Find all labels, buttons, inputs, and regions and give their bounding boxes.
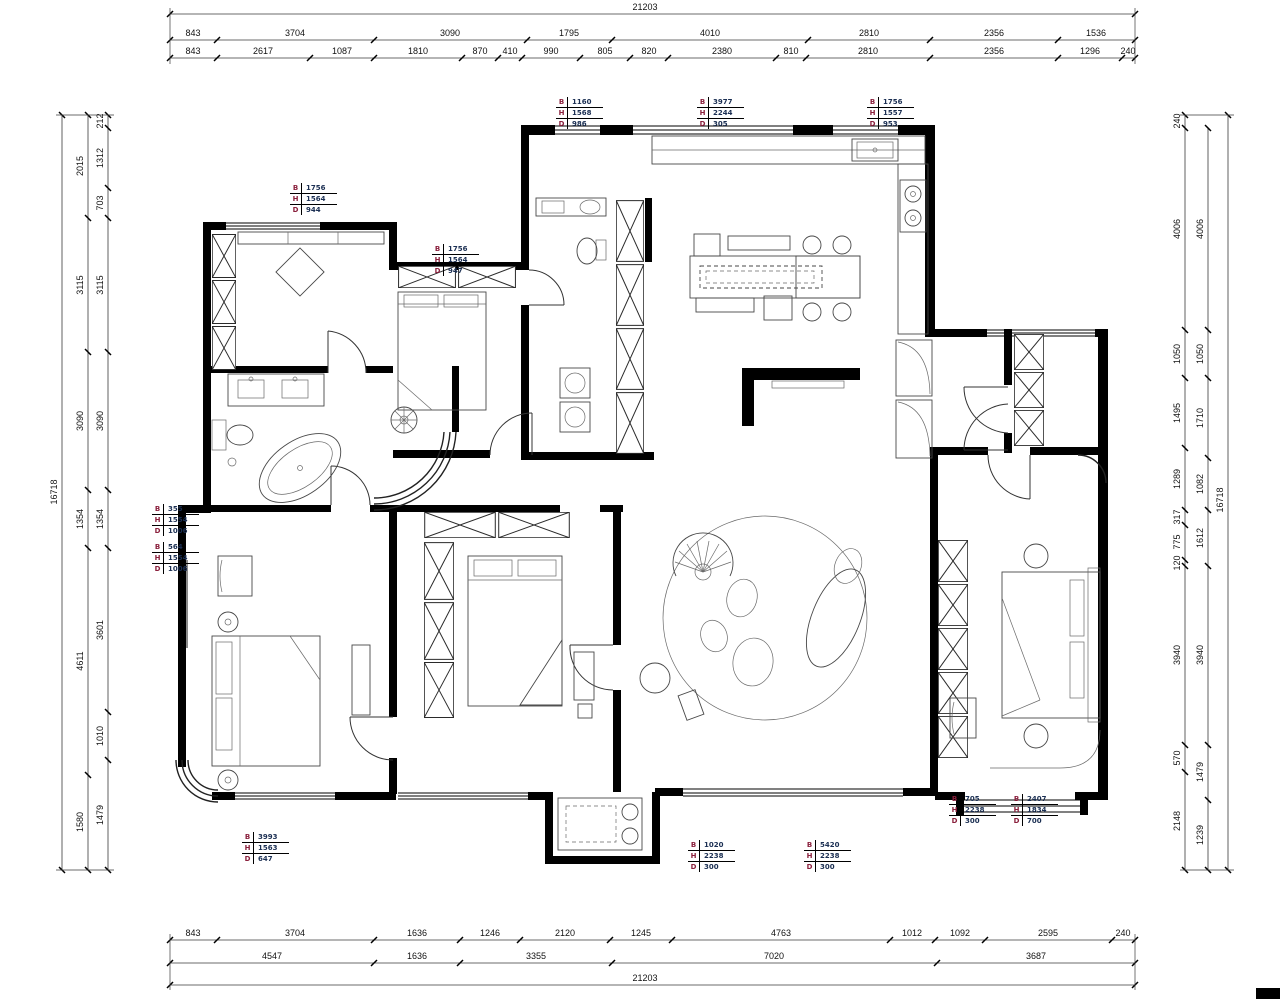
wall [925,329,987,337]
fixture-annotation: B3993 H1563 D647 [242,832,289,864]
fixture-annotation: B1160 H1568 D986 [556,97,603,129]
wall [389,512,397,717]
annotation-value: 1020 [700,840,735,850]
dim-label: 3601 [95,620,105,640]
wardrobe [938,584,967,625]
wall [389,758,397,794]
annotation-letter: D [1011,816,1023,826]
wall [652,792,660,862]
tv-side-cabinet [742,368,754,426]
toilet-bowl [577,238,597,264]
wall [393,450,490,458]
fridge-cabinet [896,340,932,396]
fixture-annotation: B1756 H1564 D944 [290,183,337,215]
annotation-value: 2244 [709,108,744,118]
annotation-letter: H [152,515,164,525]
fixture-annotation: B5420 H2238 D300 [804,840,851,872]
dim-label: 570 [1172,750,1182,765]
pillow [216,642,232,694]
dim-label: 775 [1172,534,1182,549]
stool [622,804,638,820]
dining-chair [833,236,851,254]
pillow [444,295,478,307]
annotation-value: 1568 [568,108,603,118]
annotation-value: 300 [961,816,996,826]
annotation-value: 1006 [164,526,199,536]
dim-label: 1082 [1195,474,1205,494]
wardrobe [212,280,236,323]
stool [578,704,592,718]
stool [218,770,238,790]
annotation-letter: H [556,108,568,118]
dim-label: 2810 [859,28,879,38]
side-table [678,690,704,721]
fixture-annotation: B1756 H1564 D947 [432,244,479,276]
annotation-letter: H [688,851,700,861]
door-swing [331,466,370,505]
dim-label: 1580 [75,812,85,832]
pantry-cabinet [896,400,932,458]
bed [1002,572,1100,718]
annotation-letter: D [697,119,709,129]
washer [560,368,590,398]
bedroom-master [938,540,1100,768]
annotation-letter: H [949,805,961,815]
dim-label: 820 [641,46,656,56]
wall [1098,455,1108,800]
annotation-letter: H [867,108,879,118]
dim-label: 21203 [632,2,657,12]
door-swing [328,331,366,373]
annotation-letter: B [242,832,254,842]
stool [622,828,638,844]
sink [238,380,264,398]
dim-label: 2015 [75,156,85,176]
chair [218,556,252,596]
pillow [1070,580,1084,636]
annotation-value: 1160 [568,97,603,107]
dim-label: 1246 [480,928,500,938]
dim-label: 7020 [764,951,784,961]
annotation-letter: D [290,205,302,215]
stool [764,296,792,320]
wardrobe [938,628,967,669]
dim-label: 1354 [95,509,105,529]
wall [521,125,529,270]
wall [529,125,555,135]
dim-label: 4763 [771,928,791,938]
dim-label: 1354 [75,509,85,529]
annotation-value: 1557 [879,108,914,118]
annotation-letter: H [804,851,816,861]
annotation-value: 947 [444,266,479,276]
annotation-letter: D [152,526,164,536]
dim-label: 3940 [1172,645,1182,665]
fixture-annotation: B1756 H1557 D953 [867,97,914,129]
annotation-letter: B [152,542,164,552]
bed [398,292,486,410]
pillow [474,560,512,576]
annotation-letter: D [688,862,700,872]
pillow [216,698,232,750]
entry-double-door [964,387,1008,450]
pouf [640,663,670,693]
dim-label: 2595 [1038,928,1058,938]
dim-label: 240 [1115,928,1130,938]
annotation-value: 3993 [254,832,289,842]
dim-label: 3704 [285,28,305,38]
annotation-value: 1564 [444,255,479,265]
dim-label: 4006 [1195,219,1205,239]
wall [1004,329,1012,385]
ceiling-fan-icon [391,407,417,433]
wall [793,125,833,135]
annotation-value: 355 [164,504,199,514]
nightstand [1024,724,1048,748]
wall [930,455,938,792]
dim-label: 1495 [1172,403,1182,423]
tall-cabinet [616,393,643,454]
dimension-labels: 21203 843 3704 3090 1795 4010 2810 2356 … [49,2,1225,983]
dim-label: 3687 [1026,951,1046,961]
floor-drain [228,458,236,466]
annotation-value: 944 [302,205,337,215]
annotation-value: 3977 [709,97,744,107]
dim-label: 240 [1120,46,1135,56]
dim-label: 1050 [1172,344,1182,364]
island-counter [690,256,860,298]
toilet-tank [596,240,606,260]
annotation-value: 700 [1023,816,1058,826]
dim-label: 410 [502,46,517,56]
dim-label: 16718 [49,479,59,504]
annotation-value: 1563 [254,843,289,853]
dim-label: 16718 [1215,487,1225,512]
annotation-letter: B [556,97,568,107]
living-room [640,381,878,720]
pillow [518,560,556,576]
dim-label: 805 [597,46,612,56]
wall [366,366,393,373]
dim-label: 1710 [1195,408,1205,428]
wall [1075,792,1108,800]
annotation-letter: B [804,840,816,850]
dim-label: 2810 [858,46,878,56]
wall [930,447,988,455]
dim-label: 120 [1172,555,1182,570]
fixture-annotation: B705 H2238 D300 [949,794,996,826]
dim-label: 1087 [332,46,352,56]
basin [580,200,600,214]
stone-top [796,256,860,298]
annotation-letter: B [1011,794,1023,804]
dim-label: 2356 [984,46,1004,56]
dim-label: 1050 [1195,344,1205,364]
dim-label: 3090 [75,411,85,431]
annotation-value: 305 [709,119,744,129]
wall [211,505,331,512]
door-swing [988,455,1030,499]
curtain-line [990,730,1100,768]
wall [600,125,633,135]
wardrobe [499,512,570,537]
dining-chair [803,303,821,321]
wall [925,125,935,337]
dim-label: 2120 [555,928,575,938]
dim-label: 1312 [95,148,105,168]
wall [1098,329,1108,455]
wall [545,792,553,862]
annotation-letter: B [949,794,961,804]
stool [694,234,720,256]
wall [903,788,935,796]
stone-pouf [730,635,776,688]
annotation-value: 5420 [816,840,851,850]
cushion [829,544,867,587]
annotation-letter: B [432,244,444,254]
dim-label: 1239 [1195,825,1205,845]
dim-label: 21203 [632,973,657,983]
dresser [352,645,370,715]
dim-label: 1479 [95,805,105,825]
annotation-value: 1756 [444,244,479,254]
dim-label: 3090 [440,28,460,38]
bed [212,636,320,766]
wall [655,788,683,796]
sink [282,380,308,398]
window [683,789,903,796]
dim-label: 240 [1172,113,1182,128]
dim-label: 2617 [253,46,273,56]
fixture-annotation: B2407 H1834 D700 [1011,794,1058,826]
tall-cabinet [616,265,643,326]
annotation-value: 1554 [164,515,199,525]
dim-label: 1636 [407,951,427,961]
annotation-value: 1756 [302,183,337,193]
dim-label: 703 [95,195,105,210]
annotation-value: 1834 [1023,805,1058,815]
dim-label: 317 [1172,509,1182,524]
tall-cabinet [616,201,643,262]
dim-label: 4547 [262,951,282,961]
annotation-letter: H [290,194,302,204]
wardrobe [938,716,967,757]
annotation-value: 986 [568,119,603,129]
stool [218,612,238,632]
round-rug [663,516,867,720]
dim-label: 2356 [984,28,1004,38]
cooktop [900,180,926,232]
sink [542,201,564,213]
dim-label: 870 [472,46,487,56]
dim-label: 4611 [75,651,85,670]
dim-label: 1092 [950,928,970,938]
dryer [560,402,590,432]
annotation-value: 953 [879,119,914,129]
bay-console [558,798,642,850]
dim-label: 843 [185,928,200,938]
dim-label: 3355 [526,951,546,961]
bathroom-master [212,374,353,517]
floor-plan-page: 21203 843 3704 3090 1795 4010 2810 2356 … [0,0,1280,999]
fixture-annotation: B564 H1554 D1006 [152,542,199,574]
dim-label: 3115 [95,275,105,294]
tall-cabinet [616,329,643,390]
annotation-letter: D [152,564,164,574]
shoe-cabinet [1014,372,1043,407]
annotation-value: 300 [816,862,851,872]
bed [468,556,562,706]
annotation-letter: H [242,843,254,853]
door-swing [529,270,564,305]
dimension-chains [56,8,1234,990]
annotation-value: 1564 [302,194,337,204]
annotation-letter: D [432,266,444,276]
peacock-chair [673,533,733,580]
wall [521,305,529,455]
nightstand [1024,544,1048,568]
annotation-letter: H [1011,805,1023,815]
annotation-value: 2238 [816,851,851,861]
cabinet-run [238,232,384,244]
annotation-letter: D [867,119,879,129]
wall [1030,447,1108,455]
fixture-annotation: B355 H1554 D1006 [152,504,199,536]
bench [728,236,790,250]
dining-island [690,234,860,321]
wardrobe [938,540,967,581]
annotation-letter: H [152,553,164,563]
dim-label: 990 [543,46,558,56]
dim-label: 3090 [95,411,105,431]
fixture-annotation: B3977 H2244 D305 [697,97,744,129]
wardrobe [212,326,236,369]
annotation-letter: H [432,255,444,265]
annotation-value: 647 [254,854,289,864]
dim-label: 810 [783,46,798,56]
annotation-letter: B [290,183,302,193]
page-corner-mark [1256,988,1280,999]
wall [645,198,652,262]
stone-pouf [723,576,762,620]
annotation-letter: B [152,504,164,514]
shoe-cabinet [1014,410,1043,445]
wall [613,505,621,645]
annotation-value: 2238 [700,851,735,861]
bedroom-bottom-mid [424,512,594,718]
dim-label: 1289 [1172,469,1182,489]
annotation-value: 300 [700,862,735,872]
annotation-letter: B [688,840,700,850]
wardrobe [424,543,453,600]
shoe-cabinet [1014,334,1043,369]
annotation-value: 1756 [879,97,914,107]
wardrobe [425,512,496,537]
annotation-letter: D [242,854,254,864]
dim-label: 1296 [1080,46,1100,56]
dim-label: 1810 [408,46,428,56]
annotation-letter: D [804,862,816,872]
annotation-letter: B [697,97,709,107]
wall [613,690,621,792]
dim-label: 3115 [75,275,85,294]
dim-label: 1795 [559,28,579,38]
dim-label: 1479 [1195,762,1205,782]
dim-label: 1636 [407,928,427,938]
bench [696,298,754,312]
dining-chair [803,236,821,254]
pillow [1070,642,1084,698]
dim-label: 4006 [1172,219,1182,239]
bathtub [247,419,353,516]
window [226,222,320,230]
annotation-letter: B [867,97,879,107]
dim-label: 843 [185,46,200,56]
tv [772,381,844,388]
pillow [404,295,438,307]
dim-label: 212 [95,113,105,128]
fixture-annotation: B1020 H2238 D300 [688,840,735,872]
wardrobe [424,603,453,660]
toilet-tank [212,420,226,450]
dining-table [700,266,822,288]
window [235,792,335,800]
annotation-value: 705 [961,794,996,804]
dim-label: 3704 [285,928,305,938]
accent-chair [276,248,324,296]
vanity [228,374,324,406]
annotation-value: 2238 [961,805,996,815]
wardrobe [212,234,236,277]
annotation-value: 1006 [164,564,199,574]
dining-chair [833,303,851,321]
annotation-letter: D [949,816,961,826]
dim-label: 4010 [700,28,720,38]
window [398,793,528,799]
wall [528,792,545,800]
annotation-letter: D [556,119,568,129]
dim-label: 2380 [712,46,732,56]
dim-label: 1612 [1195,528,1205,548]
annotation-value: 2407 [1023,794,1058,804]
desk [574,652,594,700]
tv-feature-wall [754,368,860,380]
dim-label: 1536 [1086,28,1106,38]
dim-label: 1245 [631,928,651,938]
door-swing [350,717,393,760]
dim-label: 2148 [1172,811,1182,831]
toilet-bowl [227,425,253,445]
annotation-value: 1554 [164,553,199,563]
dim-label: 843 [185,28,200,38]
dim-label: 1012 [902,928,922,938]
floor-plan-canvas: 21203 843 3704 3090 1795 4010 2810 2356 … [0,0,1280,999]
annotation-letter: H [697,108,709,118]
bedroom-bottom-left [212,556,370,790]
wardrobe [424,663,453,718]
dim-label: 3940 [1195,645,1205,665]
bathroom-top [536,198,644,453]
entry-hall [1014,334,1043,445]
wall [452,366,459,432]
annotation-value: 564 [164,542,199,552]
dim-label: 1010 [95,726,105,746]
stone-pouf [696,617,731,656]
counter-right [898,164,928,334]
